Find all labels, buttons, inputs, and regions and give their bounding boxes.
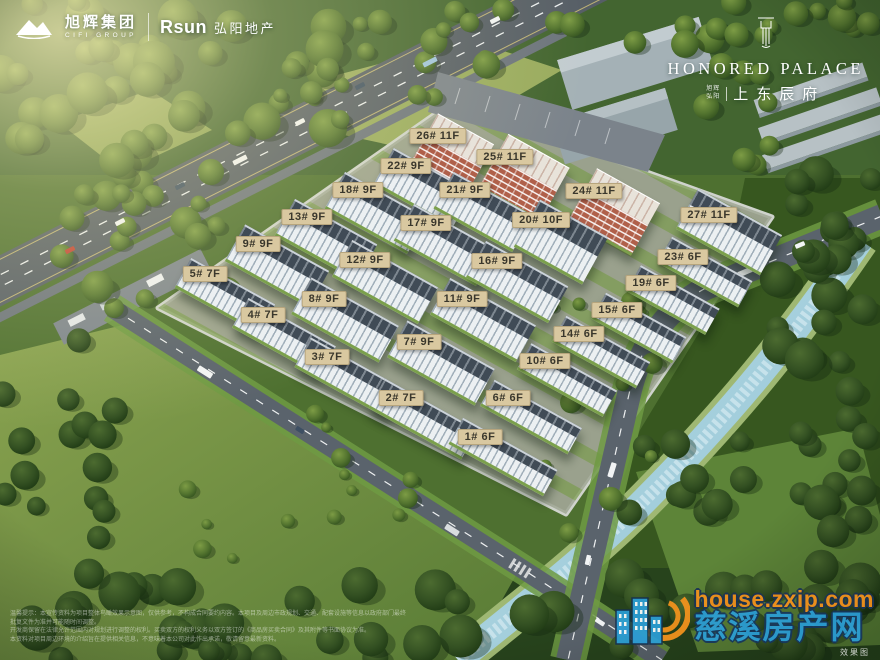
project-name-en: HONORED PALACE: [668, 59, 864, 79]
disclaimer-line: 本资料对项目周边环境的介绍旨在提供相关信息，不意味着本公司对此作出承诺，敬请留意…: [10, 636, 410, 645]
project-dev2: 弘阳: [706, 94, 720, 101]
cifi-mountain-icon: [14, 15, 54, 39]
project-dev1: 旭辉: [706, 86, 720, 93]
disclaimer-line: 温馨提示：本宣传资料为项目整体鸟瞰效果示意图，仅供参考，不构成合同要约内容。本项…: [10, 610, 410, 627]
cifi-name-cn: 旭辉集团: [65, 15, 137, 30]
project-emblem-icon: [753, 16, 779, 50]
cifi-name-en: CIFI GROUP: [65, 33, 137, 40]
watermark-site-name: 慈溪房产网: [694, 611, 864, 645]
rsun-logo: Rsun: [160, 17, 207, 38]
project-divider: [726, 87, 727, 101]
aerial-rendering: 1# 6F2# 7F3# 7F4# 7F5# 7F6# 6F7# 9F8# 9F…: [0, 0, 880, 660]
project-logo: HONORED PALACE 旭辉 弘阳 上东辰府: [668, 16, 864, 104]
rsun-name-cn: 弘阳地产: [214, 18, 276, 37]
render-note: 效果图: [840, 647, 870, 658]
watermark-logo-icon: [612, 584, 690, 648]
disclaimer-text: 温馨提示：本宣传资料为项目整体鸟瞰效果示意图，仅供参考，不构成合同要约内容。本项…: [10, 610, 410, 644]
disclaimer-line: 开发商保留在法律允许范围内对规划进行调整的权利。买卖双方的权利义务以双方签订的《…: [10, 627, 410, 636]
logo-divider: [148, 13, 149, 41]
developer-logos: 旭辉集团 CIFI GROUP Rsun 弘阳地产: [14, 13, 276, 41]
watermark: house.zxip.com 慈溪房产网: [612, 584, 874, 648]
project-name-cn: 上东辰府: [733, 83, 825, 104]
watermark-url: house.zxip.com: [694, 587, 874, 611]
